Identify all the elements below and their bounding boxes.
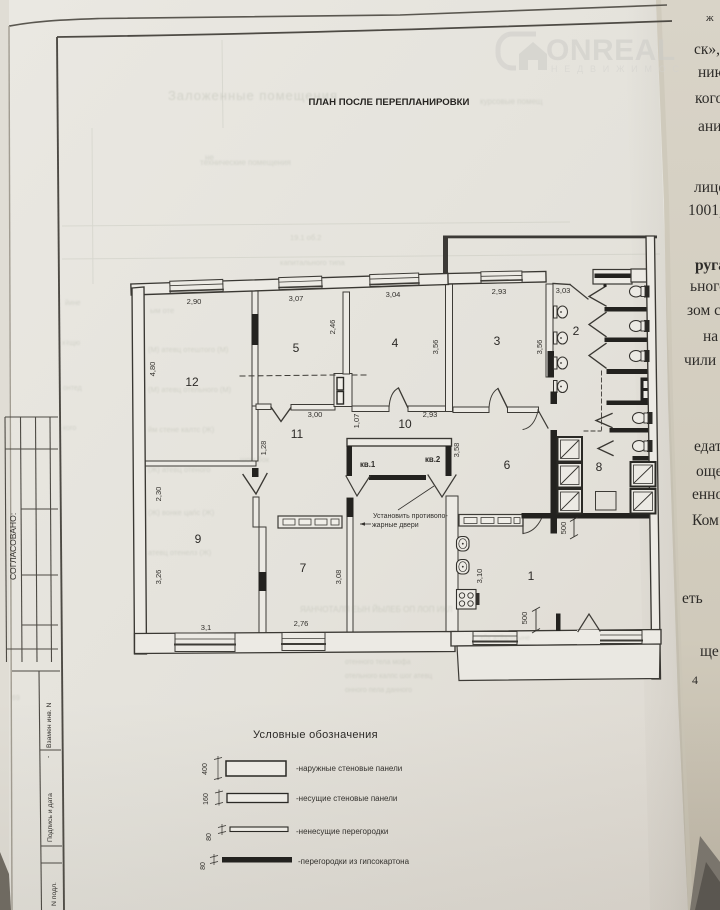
svg-text:2,90: 2,90	[187, 297, 202, 306]
svg-text:ым оте: ым оте	[150, 306, 174, 315]
svg-text:3,56: 3,56	[431, 340, 440, 355]
svg-text:3,56: 3,56	[535, 340, 544, 355]
svg-text:йине: йине	[65, 299, 81, 307]
svg-text:СОГЛАСОВАНО:: СОГЛАСОВАНО:	[8, 513, 18, 580]
svg-text:атевц отенелз (Ж): атевц отенелз (Ж)	[148, 548, 212, 557]
svg-text:2,30: 2,30	[154, 487, 163, 502]
svg-text:онного пела данного: онного пела данного	[345, 687, 412, 694]
svg-text:(Ж) атевц отеного: (Ж) атевц отеного	[148, 465, 210, 474]
svg-text:8: 8	[596, 460, 603, 474]
svg-text:2,93: 2,93	[423, 410, 438, 419]
svg-text:400: 400	[202, 763, 209, 775]
svg-text:1,07: 1,07	[352, 414, 361, 429]
svg-text:капитального типа: капитального типа	[280, 258, 345, 267]
svg-text:отельного калпс шог атевц: отельного калпс шог атевц	[345, 673, 432, 680]
svg-text:-перегородки из гипсокартона: -перегородки из гипсокартона	[298, 857, 410, 866]
svg-text:3,10: 3,10	[475, 569, 484, 584]
svg-text:онтед: онтед	[63, 385, 82, 392]
svg-text:3,1: 3,1	[201, 623, 212, 632]
svg-text:не: не	[205, 153, 214, 162]
svg-text:едат: едат	[694, 438, 720, 455]
svg-text:3,26: 3,26	[154, 570, 163, 585]
svg-text:2,46: 2,46	[328, 320, 337, 335]
svg-text:3,04: 3,04	[386, 290, 401, 299]
svg-text:80: 80	[206, 833, 213, 841]
svg-text:(М) атевц отельного (М): (М) атевц отельного (М)	[148, 385, 232, 394]
svg-text:3,00: 3,00	[308, 410, 323, 419]
svg-text:-несущие стеновые панели: -несущие стеновые панели	[296, 794, 397, 803]
svg-text:1,28: 1,28	[259, 441, 268, 456]
svg-text:1001,: 1001,	[688, 202, 720, 219]
svg-text:енно: енно	[692, 486, 720, 503]
svg-text:N подл.: N подл.	[51, 882, 58, 906]
svg-text:ж: ж	[705, 12, 714, 24]
svg-text:10: 10	[398, 417, 412, 431]
svg-text:3,08: 3,08	[334, 570, 343, 585]
svg-text:Ком: Ком	[692, 512, 719, 529]
svg-text:500: 500	[559, 522, 568, 535]
svg-text:-ненесущие перегородки: -ненесущие перегородки	[296, 827, 388, 836]
svg-text:ании: ании	[698, 118, 720, 135]
svg-text:69: 69	[12, 695, 20, 702]
svg-text:-: -	[45, 756, 52, 758]
svg-text:1: 1	[528, 569, 535, 583]
svg-text:още: още	[696, 463, 720, 480]
svg-text:5: 5	[293, 341, 300, 355]
svg-text:шом бок: шом бок	[240, 455, 270, 464]
svg-text:3,03: 3,03	[556, 286, 571, 295]
svg-text:на: на	[703, 328, 718, 345]
svg-text:НЕДВИЖИМОС: НЕДВИЖИМОС	[551, 64, 686, 74]
svg-text:Заложенные помещения: Заложенные помещения	[168, 88, 338, 103]
svg-text:2,93: 2,93	[492, 287, 507, 296]
svg-text:3,07: 3,07	[289, 294, 304, 303]
svg-text:(Ж) вонке цańс (Ж): (Ж) вонке цańс (Ж)	[148, 508, 215, 517]
svg-text:зом с: зом с	[687, 302, 720, 319]
svg-text:Установить противопо-: Установить противопо-	[373, 513, 448, 520]
svg-text:ьного: ьного	[690, 278, 720, 295]
svg-text:4: 4	[692, 673, 698, 687]
svg-text:160: 160	[203, 793, 210, 805]
svg-text:ЯАНЧОТАЛП ЕЫН ЙЫЛЕБ ОП ЛОП И: ЯАНЧОТАЛП ЕЫН ЙЫЛЕБ ОП ЛОП ИКЛ	[300, 605, 452, 614]
svg-text:курсовые помещ: курсовые помещ	[480, 97, 543, 106]
svg-text:7: 7	[300, 561, 307, 575]
svg-text:кв.2: кв.2	[425, 455, 441, 464]
svg-text:Условные обозначения: Условные обозначения	[253, 729, 378, 741]
svg-text:3,58: 3,58	[452, 443, 461, 458]
svg-text:чили: чили	[684, 352, 716, 369]
svg-text:лице: лице	[694, 179, 720, 196]
svg-text:Подпись и дата: Подпись и дата	[47, 793, 54, 842]
svg-text:ск»,: ск»,	[694, 41, 720, 58]
svg-text:йм стене калтс (Ж): йм стене калтс (Ж)	[148, 425, 215, 434]
svg-text:хûх атйалп ыне: хûх атйалп ыне	[480, 634, 530, 642]
svg-text:2: 2	[573, 324, 580, 338]
svg-text:500: 500	[520, 612, 529, 625]
svg-text:(М) атевц отештого (М): (М) атевц отештого (М)	[148, 345, 229, 354]
svg-text:кого: кого	[695, 90, 720, 107]
svg-text:3: 3	[494, 334, 501, 348]
svg-text:кв.1: кв.1	[360, 460, 376, 469]
svg-text:еть: еть	[682, 590, 703, 607]
svg-text:2,76: 2,76	[294, 619, 309, 628]
svg-text:4,80: 4,80	[148, 362, 157, 377]
svg-text:ще: ще	[700, 643, 719, 660]
svg-text:11: 11	[291, 427, 304, 441]
svg-text:80: 80	[200, 862, 207, 870]
svg-text:9: 9	[195, 532, 202, 546]
svg-text:нию: нию	[698, 64, 720, 81]
svg-text:19.1 об.2: 19.1 об.2	[290, 233, 321, 242]
svg-text:кого: кого	[63, 425, 76, 432]
svg-text:ONREAL: ONREAL	[546, 34, 676, 67]
svg-text:жарные двери: жарные двери	[372, 522, 419, 529]
svg-text:-наружные стеновые панели: -наружные стеновые панели	[296, 764, 402, 773]
svg-text:6: 6	[504, 458, 511, 472]
svg-text:отенного тела мофа: отенного тела мофа	[345, 659, 411, 666]
svg-text:Взамен инв. N: Взамен инв. N	[46, 703, 53, 748]
svg-text:руга: руга	[695, 257, 720, 274]
svg-text:х२щю: х२щю	[62, 340, 80, 347]
svg-text:4: 4	[392, 336, 399, 350]
